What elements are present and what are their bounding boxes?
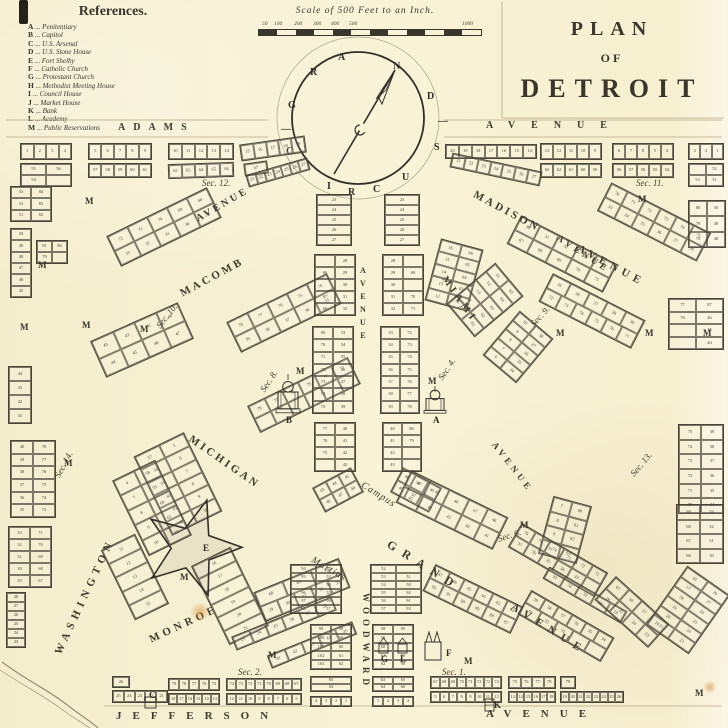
lot-cell: 64 bbox=[373, 684, 393, 691]
lot-cell: 67 bbox=[431, 677, 440, 688]
lot-cell: 56 bbox=[316, 597, 341, 605]
block-row: 5351 bbox=[689, 175, 723, 186]
lot-cell: 81 bbox=[37, 241, 52, 252]
lot-cell: 30 bbox=[9, 563, 30, 575]
circus-letter: I bbox=[327, 181, 331, 192]
lot-cell: 8 bbox=[126, 144, 138, 159]
block-row: 50 bbox=[11, 229, 31, 240]
city-block: 63656466 bbox=[372, 676, 414, 692]
city-block: 67854 bbox=[612, 143, 674, 160]
block-row: 7539 bbox=[679, 425, 723, 440]
block-row: 43 bbox=[383, 459, 421, 471]
lot-cell: 14 bbox=[202, 694, 210, 704]
lot-cell: 70 bbox=[457, 677, 466, 688]
lot-cell: 91 bbox=[396, 597, 421, 605]
lot-cell: 17 bbox=[177, 694, 185, 704]
section-label: Sec. 11. bbox=[636, 178, 664, 188]
block-row: 7236 bbox=[679, 469, 723, 484]
block-row: 44 bbox=[669, 337, 723, 350]
city-block: 79 bbox=[560, 676, 576, 689]
lot-cell: 75 bbox=[209, 679, 219, 690]
block-row: 321 bbox=[689, 144, 723, 159]
lot-cell: 21 bbox=[156, 691, 167, 702]
reservation-marker: M bbox=[38, 260, 47, 270]
lot-cell: 62 bbox=[553, 164, 565, 177]
lot-cell bbox=[46, 175, 71, 186]
paper-stain bbox=[703, 680, 717, 694]
lot-cell: 50 bbox=[11, 229, 31, 240]
city-block: 6933703471357236733774387539 bbox=[312, 326, 354, 414]
lot-cell: 82 bbox=[31, 210, 51, 221]
lot-cell bbox=[291, 581, 316, 589]
lot-cell: 18 bbox=[472, 145, 485, 158]
circus-letter: D bbox=[427, 91, 434, 102]
block-row: 7337 bbox=[313, 376, 353, 388]
block-row: 1234 bbox=[21, 144, 71, 159]
lot-cell: 73 bbox=[679, 454, 701, 469]
building-icon-G bbox=[377, 638, 390, 654]
circus-letter: U bbox=[402, 172, 409, 183]
lot-cell: 76 bbox=[521, 677, 533, 688]
block-row: 6263646566 bbox=[169, 163, 233, 178]
block-row: 6933 bbox=[677, 505, 723, 520]
circus-letter: S bbox=[434, 142, 440, 153]
city-block: 7978777675 bbox=[168, 678, 220, 691]
block-row: 5182 bbox=[11, 210, 51, 221]
section-label: Sec. 12. bbox=[202, 178, 230, 188]
lot-cell: 74 bbox=[313, 388, 333, 400]
lot-cell: 100 bbox=[311, 634, 331, 643]
lot-cell: 69 bbox=[313, 327, 333, 339]
lot-cell: 10 bbox=[246, 694, 255, 704]
lot-cell: 55 bbox=[21, 164, 46, 175]
lot-cell: 6 bbox=[613, 144, 625, 159]
lot-cell: 44 bbox=[696, 337, 723, 350]
block-row: 25 bbox=[7, 620, 25, 629]
lot-cell: 72 bbox=[679, 469, 701, 484]
lot-cell: 15 bbox=[194, 694, 202, 704]
lot-cell: 60 bbox=[577, 164, 589, 177]
lot-cell: 72 bbox=[313, 364, 333, 376]
lot-cell: 11 bbox=[182, 144, 195, 159]
lot-cell: 70 bbox=[30, 539, 51, 551]
circus-letter: N bbox=[393, 61, 400, 72]
lot-cell: 9 bbox=[139, 144, 151, 159]
lot-cell: 2 bbox=[331, 697, 341, 706]
lot-cell: 37 bbox=[701, 454, 723, 469]
block-row: 5351 bbox=[371, 573, 421, 581]
block-row: 6466 bbox=[373, 684, 413, 691]
block-row: 181716151413 bbox=[169, 694, 219, 704]
lot-cell: 35 bbox=[701, 484, 723, 499]
lot-cell: 69 bbox=[677, 505, 700, 520]
lot-cell: 69 bbox=[403, 267, 423, 279]
lot-cell: 50 bbox=[707, 201, 725, 216]
city-block: 5657585554 bbox=[612, 163, 674, 178]
lot-cell bbox=[402, 459, 421, 471]
lot-cell: 59 bbox=[331, 634, 351, 643]
lot-cell: 44 bbox=[9, 367, 31, 381]
lot-cell: 62 bbox=[331, 660, 351, 669]
lot-cell: 26 bbox=[615, 692, 623, 702]
lot-cell: 12 bbox=[227, 694, 236, 704]
lot-cell: 95 bbox=[291, 573, 316, 581]
building-label-C: C bbox=[149, 690, 156, 700]
reservation-marker: M bbox=[645, 328, 654, 338]
lot-cell: 77 bbox=[189, 679, 199, 690]
lot-cell: 10 bbox=[577, 144, 589, 159]
lot-cell: 55 bbox=[649, 164, 661, 177]
lot-cell: 58 bbox=[101, 164, 113, 177]
block-row: 7542 bbox=[315, 447, 355, 459]
city-block: 131211109 bbox=[540, 143, 602, 160]
block-row: 5793 bbox=[371, 605, 421, 613]
lot-cell: 32 bbox=[9, 539, 30, 551]
lot-cell: 75 bbox=[509, 677, 521, 688]
lot-cell: 70 bbox=[403, 291, 423, 303]
block-row: 84 bbox=[311, 684, 351, 691]
block-row: 3473 bbox=[381, 339, 419, 351]
lot-cell: 74 bbox=[492, 677, 501, 688]
lot-cell: 36 bbox=[701, 469, 723, 484]
lot-cell bbox=[669, 324, 696, 337]
lot-cell: 67 bbox=[677, 534, 700, 549]
building-label-K: K bbox=[494, 700, 501, 710]
lot-cell: 42 bbox=[383, 447, 402, 459]
block-row: 3068 bbox=[9, 563, 51, 575]
lot-cell: 76 bbox=[669, 312, 696, 325]
lot-cell: 63 bbox=[373, 677, 393, 684]
lot-cell: 56 bbox=[46, 164, 71, 175]
lot-cell: 24 bbox=[7, 629, 25, 638]
city-block: 1011121314 bbox=[168, 143, 234, 160]
block-row: 25 bbox=[317, 215, 351, 225]
block-row: 48 bbox=[11, 252, 31, 263]
city-block: 12111098765 bbox=[226, 693, 302, 705]
lot-cell: 31 bbox=[9, 551, 30, 563]
city-block: 321 bbox=[688, 143, 724, 160]
lot-cell: 101 bbox=[311, 643, 331, 652]
city-block: 2324252627 bbox=[316, 194, 352, 246]
lot-cell: 96 bbox=[291, 589, 316, 597]
building-icon-F bbox=[422, 632, 444, 662]
city-block: 1234 bbox=[20, 143, 72, 160]
block-row: 28 bbox=[383, 255, 423, 267]
block-row: 9857 bbox=[291, 605, 341, 613]
lot-cell: 9 bbox=[589, 144, 601, 159]
block-row: 131415161718 bbox=[509, 692, 555, 702]
block-row: 3674 bbox=[11, 492, 55, 505]
building-label-A: A bbox=[433, 415, 440, 425]
lot-cell: 19 bbox=[561, 692, 569, 702]
lot-cell: 46 bbox=[696, 312, 723, 325]
lot-cell: 65 bbox=[393, 677, 413, 684]
block-row: 10362 bbox=[311, 660, 351, 669]
block-row: 6731 bbox=[677, 534, 723, 549]
city-block: 33713270316930682967 bbox=[8, 526, 52, 588]
block-row: 45 bbox=[669, 324, 723, 337]
block-row: 6630 bbox=[677, 549, 723, 564]
block-row: 10160 bbox=[311, 643, 351, 652]
lot-cell: 77 bbox=[400, 388, 419, 400]
lot-cell: 68 bbox=[315, 303, 335, 315]
lot-cell: 57 bbox=[625, 164, 637, 177]
block-row: 52 bbox=[689, 164, 723, 175]
city-block: 407839773876377536743573 bbox=[10, 440, 56, 518]
reservation-marker: M bbox=[520, 520, 529, 530]
block-row: 47 bbox=[11, 263, 31, 274]
lot-cell: 38 bbox=[333, 388, 353, 400]
block-row: 1920212223242526 bbox=[561, 692, 623, 702]
lot-cell: 99 bbox=[311, 625, 331, 634]
lot-cell: 52 bbox=[11, 198, 31, 209]
reservation-marker: M bbox=[464, 656, 473, 666]
lot-cell: 20 bbox=[569, 692, 577, 702]
lot-cell: 40 bbox=[335, 423, 355, 435]
lot-cell: 59 bbox=[114, 164, 126, 177]
lot-cell: 80 bbox=[689, 201, 707, 216]
lot-cell: 79 bbox=[561, 677, 575, 688]
compass-needle bbox=[334, 70, 395, 174]
lot-cell: 25 bbox=[7, 620, 25, 629]
lot-cell: 52 bbox=[371, 565, 396, 573]
lot-cell: 13 bbox=[207, 144, 220, 159]
block-row: 26 bbox=[317, 225, 351, 235]
lot-cell: 32 bbox=[383, 303, 403, 315]
reservation-marker: M bbox=[82, 320, 91, 330]
lot-cell: 7 bbox=[449, 692, 458, 702]
lot-cell: 76 bbox=[199, 679, 209, 690]
lot-cell: 74 bbox=[227, 679, 236, 690]
lot-cell: 42 bbox=[9, 395, 31, 409]
lot-cell: 75 bbox=[679, 425, 701, 440]
city-block: 4321 bbox=[310, 696, 352, 707]
paper-stain bbox=[190, 602, 210, 622]
block-row: 2967 bbox=[9, 575, 51, 587]
building-label-L: L bbox=[400, 654, 406, 664]
lot-cell: 5 bbox=[431, 692, 440, 702]
circus-letter: C bbox=[373, 184, 380, 195]
block-row: 43 bbox=[9, 381, 31, 395]
plan-of-detroit-map: References. A ... PenitentiaryB ... Capi… bbox=[0, 0, 728, 728]
city-block: 408041794243 bbox=[382, 422, 422, 472]
lot-cell bbox=[315, 279, 335, 291]
city-block: 995810059101601026110362 bbox=[310, 624, 352, 670]
lot-cell: 79 bbox=[169, 679, 179, 690]
circus-letter: — bbox=[281, 124, 291, 135]
lot-cell: 25 bbox=[317, 215, 351, 225]
lot-cell: 1 bbox=[21, 144, 34, 159]
block-row: 23 bbox=[385, 195, 419, 205]
lot-cell bbox=[669, 337, 696, 350]
block-row: 8186 bbox=[37, 241, 67, 252]
lot-cell: 67 bbox=[315, 291, 335, 303]
lot-cell: 13 bbox=[509, 692, 517, 702]
lot-cell: 33 bbox=[700, 505, 723, 520]
lot-cell: 26 bbox=[7, 611, 25, 620]
lot-cell: 79 bbox=[402, 435, 421, 447]
block-row: 2524232221 bbox=[113, 691, 167, 702]
lot-cell: 5 bbox=[649, 144, 661, 159]
building-label-B: B bbox=[286, 415, 292, 425]
block-row: 3271 bbox=[383, 303, 423, 315]
block-row: 4080 bbox=[383, 423, 421, 435]
lot-cell: 40 bbox=[11, 441, 33, 454]
lot-cell: 59 bbox=[589, 164, 601, 177]
reservation-marker: M bbox=[638, 194, 647, 204]
lot-cell: 33 bbox=[381, 327, 400, 339]
lot-cell: 8 bbox=[637, 144, 649, 159]
block-row: 3978 bbox=[381, 401, 419, 413]
block-row: 8050 bbox=[689, 201, 725, 216]
block-row: 12111098765 bbox=[227, 694, 301, 704]
lot-cell bbox=[52, 252, 67, 263]
block-row: 4179 bbox=[383, 435, 421, 447]
city-block: 753974387337723671357034 bbox=[678, 424, 724, 514]
lot-cell: 10 bbox=[475, 692, 484, 702]
block-row: 25 bbox=[385, 215, 419, 225]
lot-cell: 15 bbox=[524, 692, 532, 702]
lot-cell: 66 bbox=[677, 549, 700, 564]
building-icon-A bbox=[424, 386, 446, 414]
lot-cell: 63 bbox=[182, 164, 195, 177]
block-row: 7438 bbox=[313, 388, 353, 400]
block-row: 23 bbox=[7, 638, 25, 647]
lot-cell: 92 bbox=[396, 589, 421, 597]
reservation-marker: M bbox=[556, 328, 565, 338]
city-block: 6263646566 bbox=[168, 162, 234, 179]
lot-cell: 77 bbox=[669, 299, 696, 312]
lot-cell: 77 bbox=[532, 677, 544, 688]
circus-letter: G bbox=[288, 100, 296, 111]
lot-cell: 74 bbox=[33, 492, 55, 505]
city-block: 181716151413 bbox=[168, 693, 220, 705]
block-row: 54 bbox=[21, 175, 71, 186]
lot-cell: 68 bbox=[677, 520, 700, 535]
block-row: 45 bbox=[11, 286, 31, 297]
block-row: 28 bbox=[315, 255, 355, 267]
lot-cell: 24 bbox=[600, 692, 608, 702]
lot-cell: 30 bbox=[335, 279, 355, 291]
lot-cell: 23 bbox=[385, 195, 419, 205]
lot-cell: 33 bbox=[333, 327, 353, 339]
lot-cell: 56 bbox=[613, 164, 625, 177]
lot-cell: 70 bbox=[264, 679, 273, 690]
lot-cell: 78 bbox=[400, 401, 419, 413]
lot-cell: 14 bbox=[517, 692, 525, 702]
lot-cell: 87 bbox=[696, 299, 723, 312]
lot-cell: 10 bbox=[169, 144, 182, 159]
lot-cell: 43 bbox=[9, 381, 31, 395]
block-row: 5895 bbox=[373, 625, 413, 634]
lot-cell: 57 bbox=[89, 164, 101, 177]
lot-cell: 55 bbox=[316, 589, 341, 597]
block-row: 6362616059 bbox=[541, 164, 601, 177]
street-label: JEFFERSON bbox=[116, 710, 279, 722]
lot-cell: 51 bbox=[396, 573, 421, 581]
block-row: 7337 bbox=[679, 454, 723, 469]
lot-cell: 3 bbox=[393, 697, 403, 706]
circus-letter: — bbox=[438, 116, 448, 127]
lot-cell: 51 bbox=[706, 175, 723, 186]
lot-cell: 71 bbox=[679, 484, 701, 499]
block-row: 44 bbox=[9, 367, 31, 381]
city-block: 26 bbox=[112, 676, 130, 688]
lot-cell: 5 bbox=[292, 694, 301, 704]
reservation-marker: M bbox=[703, 328, 712, 338]
lot-cell: 73 bbox=[484, 677, 493, 688]
lot-cell: 28 bbox=[383, 255, 403, 267]
lot-cell: 47 bbox=[11, 263, 31, 274]
block-row: 30 bbox=[315, 279, 355, 291]
building-icon-B bbox=[276, 374, 300, 414]
lot-cell: 19 bbox=[291, 137, 306, 154]
lot-cell: 17 bbox=[485, 145, 498, 158]
city-block: 2866293067316832 bbox=[314, 254, 356, 316]
block-row: 3876 bbox=[11, 466, 55, 479]
lot-cell: 49 bbox=[707, 216, 725, 231]
block-row: 3574 bbox=[381, 352, 419, 364]
lot-cell: 77 bbox=[315, 423, 335, 435]
block-row: 79 bbox=[561, 677, 575, 688]
grand-circus bbox=[264, 26, 454, 216]
lot-cell: 41 bbox=[335, 435, 355, 447]
lot-cell: 14 bbox=[220, 144, 233, 159]
lot-cell: 76 bbox=[400, 376, 419, 388]
lot-cell: 61 bbox=[565, 164, 577, 177]
lot-cell: 27 bbox=[7, 602, 25, 611]
lot-cell: 9 bbox=[466, 692, 475, 702]
block-row: 28 bbox=[7, 593, 25, 602]
reservation-marker: M bbox=[20, 322, 29, 332]
lot-cell: 38 bbox=[11, 466, 33, 479]
block-row: 7646 bbox=[669, 312, 723, 325]
city-block: 538452835182 bbox=[10, 186, 52, 222]
lot-cell: 73 bbox=[313, 376, 333, 388]
lot-cell bbox=[402, 447, 421, 459]
lot-cell: 36 bbox=[381, 364, 400, 376]
block-row: 3270 bbox=[9, 539, 51, 551]
lot-cell: 77 bbox=[33, 454, 55, 467]
block-row: 131211109 bbox=[541, 144, 601, 159]
lot-cell: 28 bbox=[7, 593, 25, 602]
lot-cell: 78 bbox=[33, 441, 55, 454]
street-label: AVENUE bbox=[486, 708, 597, 720]
lot-cell: 75 bbox=[33, 479, 55, 492]
street-label: WOODWARD bbox=[361, 593, 371, 690]
lot-cell: 56 bbox=[371, 597, 396, 605]
block-row: 3372 bbox=[381, 327, 419, 339]
block-row: 6832 bbox=[315, 303, 355, 315]
street-label: ADAMS bbox=[118, 122, 195, 133]
lot-cell: 16 bbox=[497, 145, 510, 158]
lot-cell: 75 bbox=[313, 401, 333, 413]
lot-cell: 31 bbox=[700, 534, 723, 549]
lot-cell: 27 bbox=[385, 235, 419, 245]
lot-cell: 62 bbox=[169, 165, 182, 178]
lot-cell: 66 bbox=[315, 267, 335, 279]
lot-cell: 58 bbox=[331, 625, 351, 634]
lot-cell: 24 bbox=[385, 205, 419, 215]
lot-cell: 72 bbox=[400, 327, 419, 339]
building-label-G: G bbox=[381, 654, 388, 664]
lot-cell: 7 bbox=[625, 144, 637, 159]
block-row: 26 bbox=[7, 611, 25, 620]
lot-cell: 4 bbox=[59, 144, 72, 159]
block-row: 5592 bbox=[371, 589, 421, 597]
block-row: 7438 bbox=[679, 440, 723, 455]
city-block: 3372347335743675377638773978 bbox=[380, 326, 420, 414]
